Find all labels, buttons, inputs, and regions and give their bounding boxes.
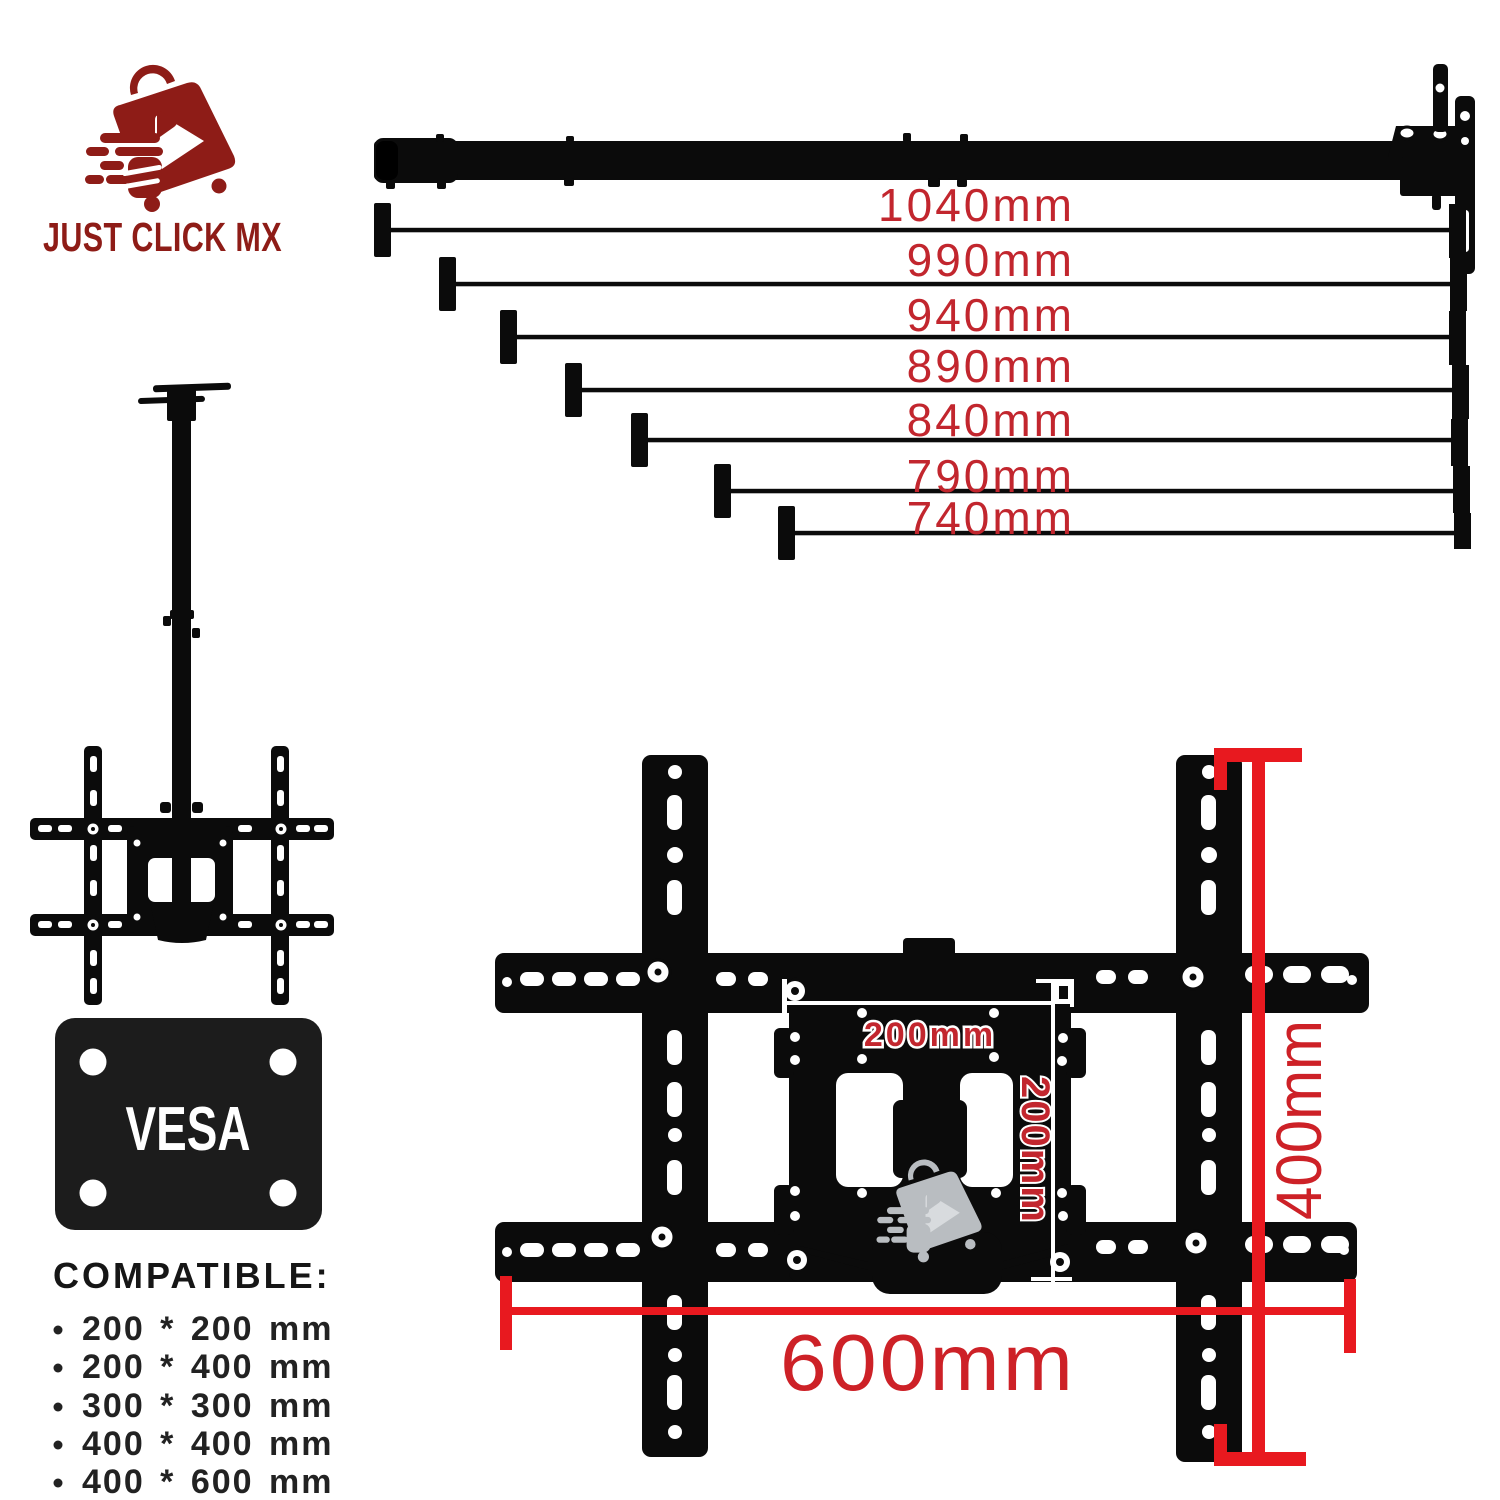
svg-text:400 * 600 mm: 400 * 600 mm	[82, 1463, 334, 1500]
svg-text:890mm: 890mm	[907, 340, 1075, 392]
svg-text:VESA: VESA	[126, 1094, 251, 1163]
svg-text:600mm: 600mm	[780, 1318, 1076, 1407]
svg-text:990mm: 990mm	[907, 234, 1075, 286]
svg-text:940mm: 940mm	[907, 289, 1075, 341]
svg-text:1040mm: 1040mm	[878, 179, 1075, 231]
svg-text:200 * 200 mm: 200 * 200 mm	[82, 1310, 334, 1348]
svg-text:COMPATIBLE:: COMPATIBLE:	[53, 1255, 331, 1296]
svg-text:300 * 300 mm: 300 * 300 mm	[82, 1387, 334, 1425]
svg-text:JUST CLICK MX: JUST CLICK MX	[43, 214, 282, 260]
svg-text:200mm: 200mm	[864, 1016, 996, 1054]
svg-text:400mm: 400mm	[1263, 1020, 1335, 1220]
svg-text:840mm: 840mm	[907, 394, 1075, 446]
svg-text:200mm: 200mm	[1013, 1076, 1057, 1224]
svg-text:200 * 400 mm: 200 * 400 mm	[82, 1348, 334, 1386]
svg-text:400 * 400 mm: 400 * 400 mm	[82, 1425, 334, 1463]
svg-text:740mm: 740mm	[907, 492, 1075, 544]
